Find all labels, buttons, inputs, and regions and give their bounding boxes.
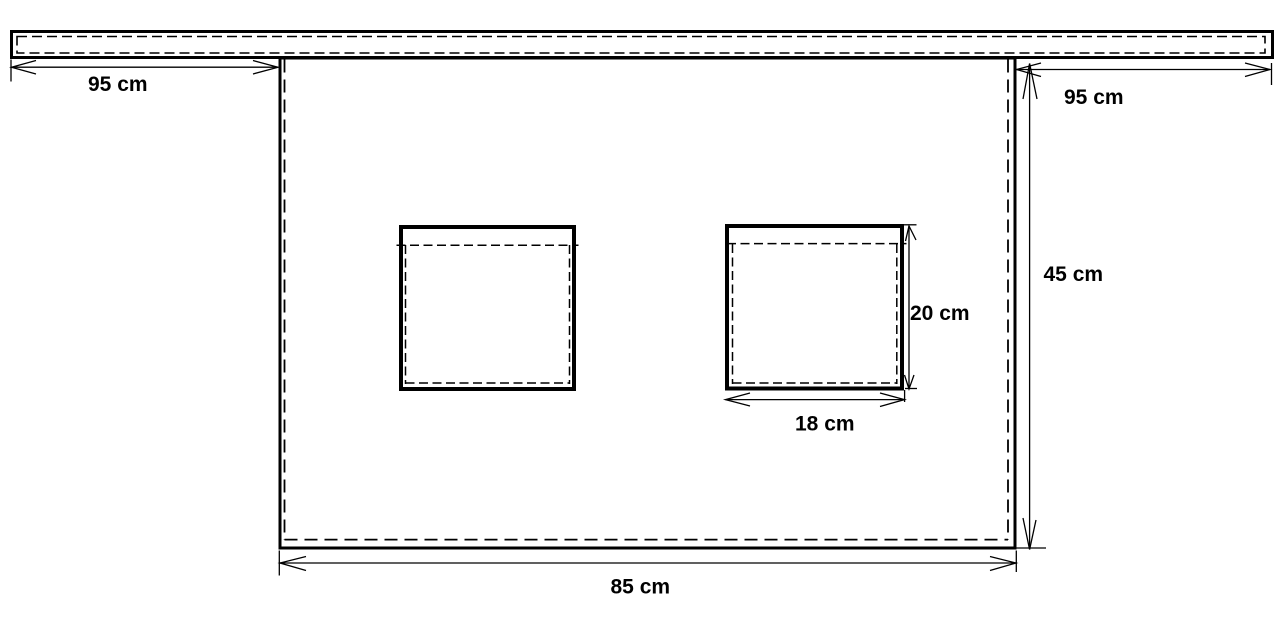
svg-text:95 cm: 95 cm — [88, 73, 148, 96]
svg-text:18 cm: 18 cm — [795, 413, 855, 436]
svg-text:20 cm: 20 cm — [910, 302, 970, 325]
svg-text:45 cm: 45 cm — [1044, 263, 1104, 286]
svg-text:95 cm: 95 cm — [1064, 86, 1124, 109]
svg-text:85 cm: 85 cm — [611, 576, 671, 599]
